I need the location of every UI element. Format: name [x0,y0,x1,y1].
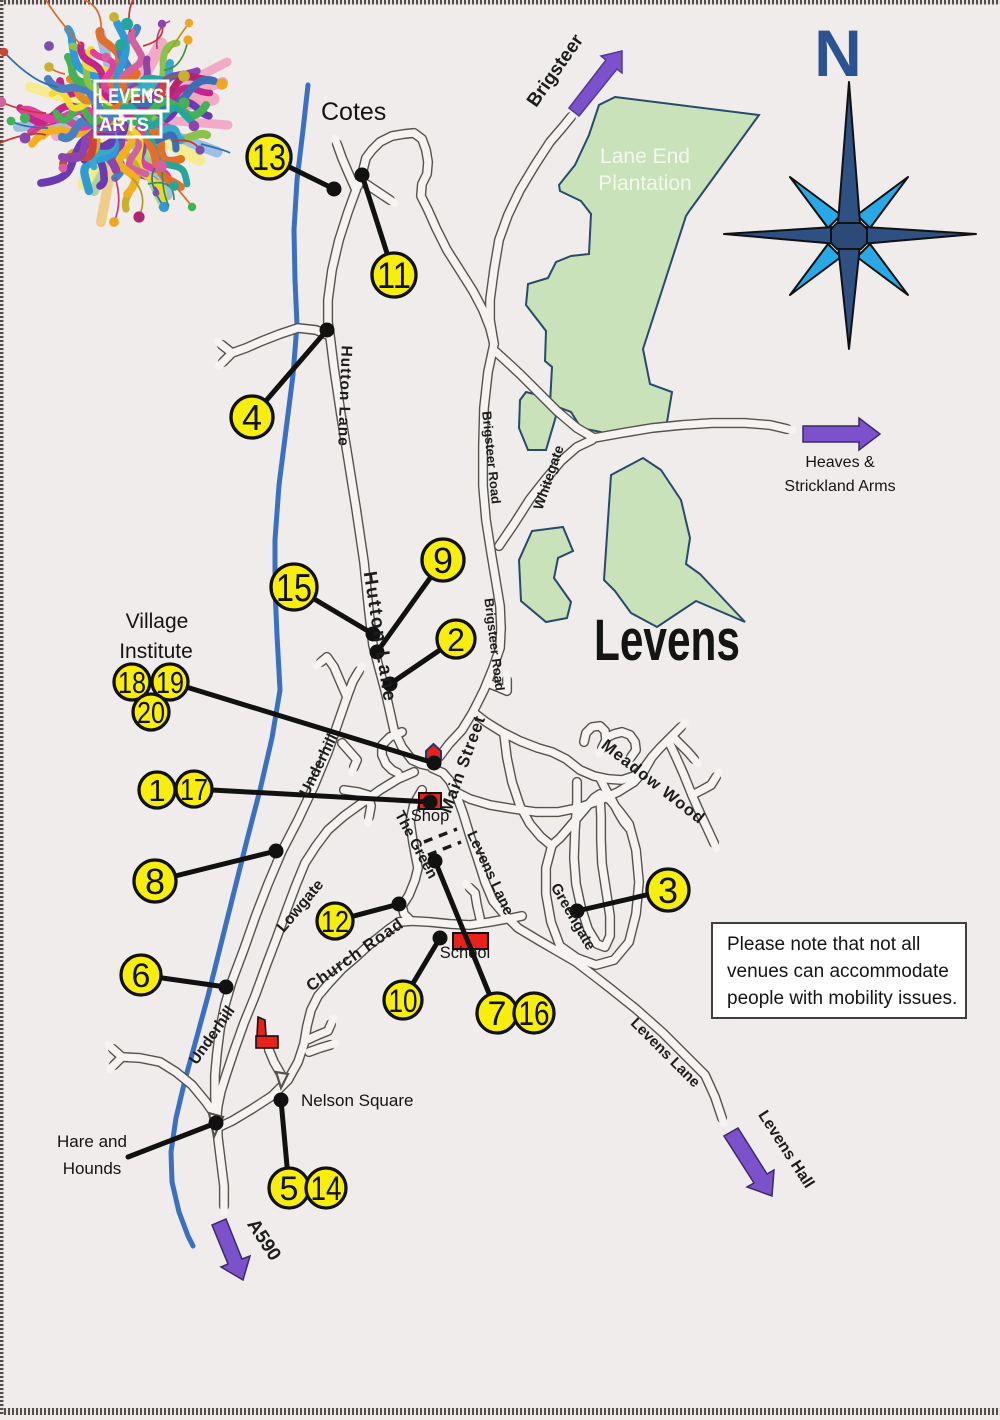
svg-text:2: 2 [447,622,465,658]
svg-text:Cotes: Cotes [321,98,386,126]
svg-text:Village: Village [126,610,189,633]
svg-text:Levens: Levens [594,608,740,673]
svg-text:Lane End: Lane End [600,145,690,168]
svg-text:3: 3 [658,870,678,911]
svg-text:7: 7 [488,995,507,1033]
svg-text:20: 20 [137,695,165,730]
svg-text:Hare and: Hare and [57,1132,127,1151]
svg-text:13: 13 [252,137,286,178]
svg-text:Strickland Arms: Strickland Arms [784,478,895,495]
svg-text:11: 11 [377,255,411,296]
svg-text:9: 9 [433,540,453,581]
svg-text:12: 12 [321,904,349,939]
svg-text:ARTS: ARTS [99,115,149,136]
svg-text:Institute: Institute [119,640,193,663]
svg-text:Hutton Lane: Hutton Lane [334,345,355,447]
svg-text:LEVENS: LEVENS [98,85,164,108]
svg-text:School: School [440,944,490,962]
svg-text:Plantation: Plantation [598,172,691,195]
svg-text:Heaves &: Heaves & [805,454,875,471]
svg-text:5: 5 [280,1170,299,1208]
svg-text:venues can accommodate: venues can accommodate [727,961,949,982]
svg-text:1: 1 [148,773,165,808]
svg-text:6: 6 [132,957,151,995]
svg-text:16: 16 [519,995,550,1033]
svg-text:N: N [814,16,862,90]
svg-text:10: 10 [389,983,418,1019]
svg-text:14: 14 [311,1170,342,1208]
svg-text:17: 17 [180,772,208,807]
svg-text:4: 4 [242,397,262,438]
svg-text:Shop: Shop [411,807,450,825]
svg-text:Hounds: Hounds [63,1159,122,1178]
svg-text:Please note that not all: Please note that not all [727,934,920,955]
svg-text:people with mobility issues.: people with mobility issues. [727,988,957,1009]
svg-text:Nelson Square: Nelson Square [301,1091,413,1110]
svg-text:8: 8 [145,861,165,902]
svg-text:15: 15 [276,567,312,610]
